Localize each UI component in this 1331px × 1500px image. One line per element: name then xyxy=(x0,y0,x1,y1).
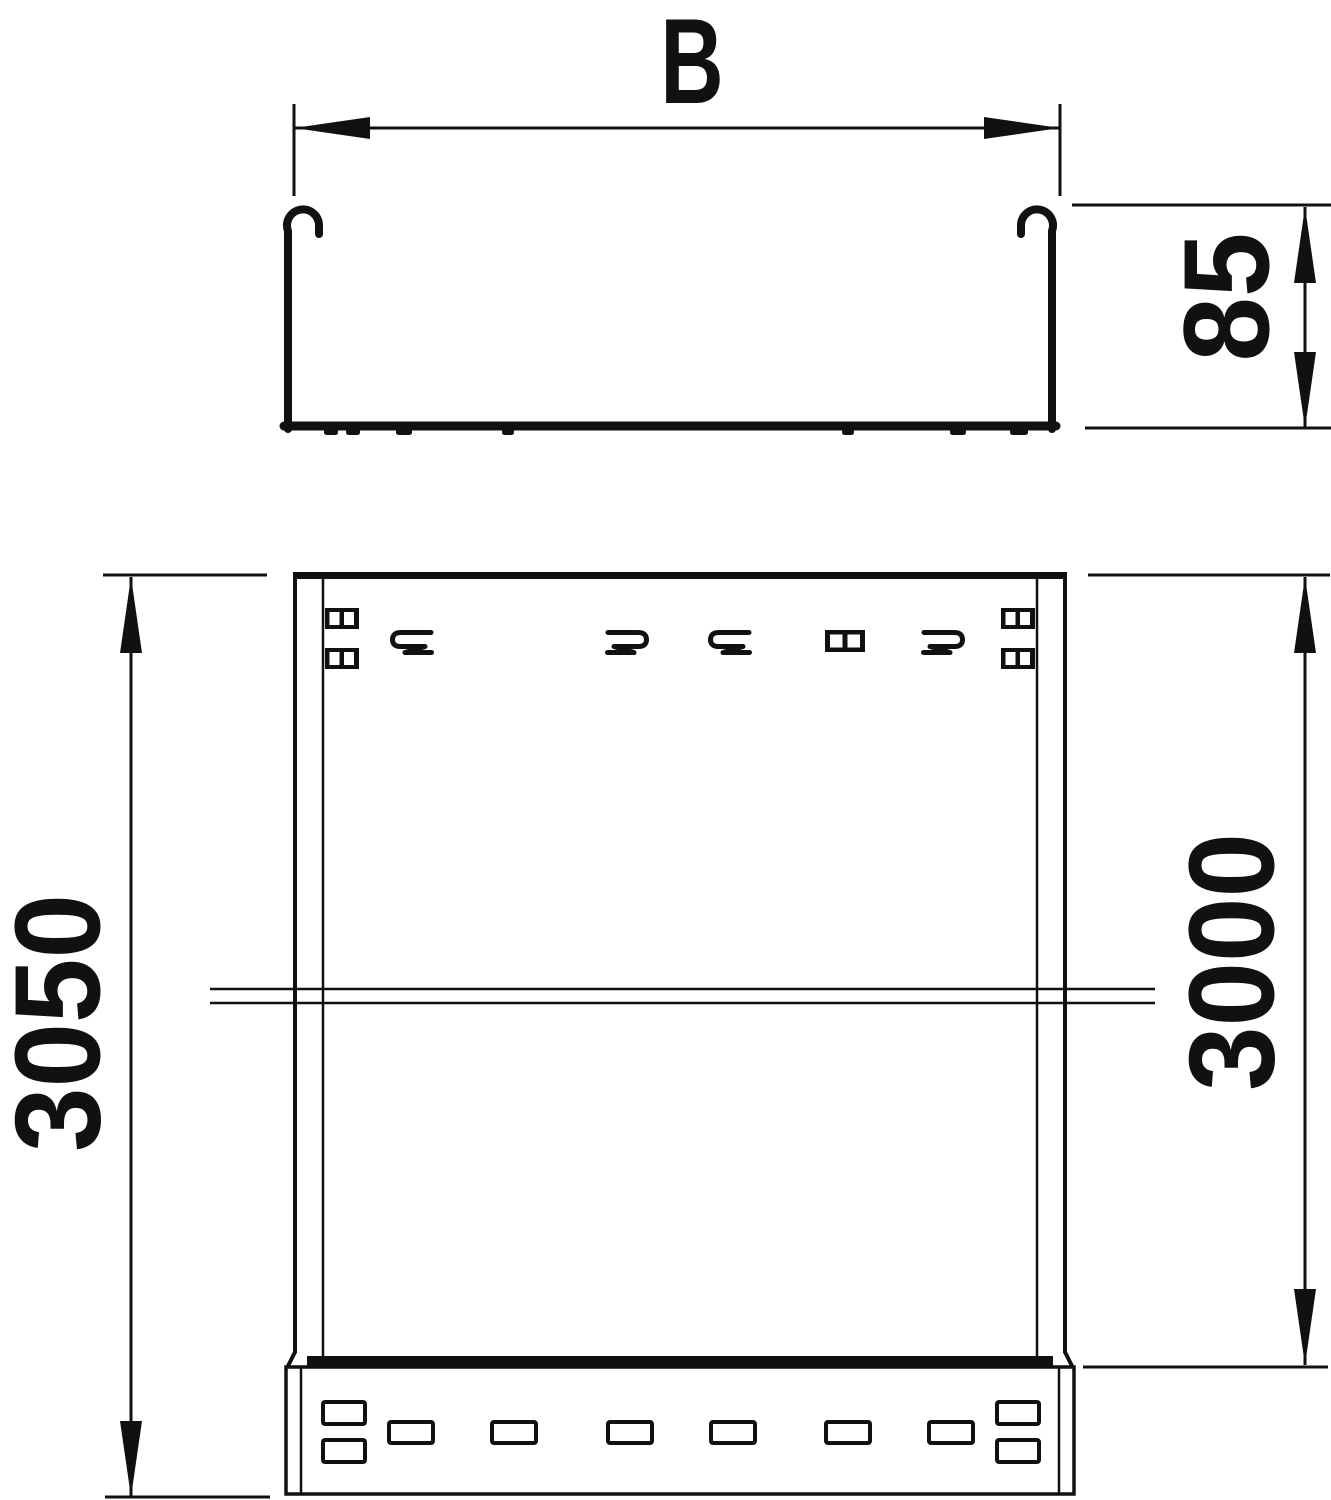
slot-perforation xyxy=(393,633,432,653)
arrowhead-down xyxy=(120,1421,142,1497)
slot-perforation xyxy=(608,633,647,653)
dimension-width-b: B xyxy=(294,0,1060,196)
rail-perforation xyxy=(325,608,359,629)
coupler-hole xyxy=(997,1402,1039,1424)
coupler-hole xyxy=(323,1440,365,1462)
left-coupler-chamfer xyxy=(288,1352,295,1366)
square-perforation xyxy=(825,630,865,652)
right-coupler-chamfer xyxy=(1065,1352,1072,1366)
cross-section-view xyxy=(284,209,1056,435)
tray-end-edge xyxy=(293,572,1067,579)
coupler-hole xyxy=(997,1440,1039,1462)
coupler-hole xyxy=(323,1402,365,1424)
rail-perforation xyxy=(1001,648,1035,669)
dimension-label-3000: 3000 xyxy=(1164,833,1300,1091)
left-side-wall-hook xyxy=(287,209,319,429)
arrowhead-up xyxy=(120,577,142,653)
coupler-top-bar xyxy=(307,1356,1053,1366)
coupler-hole xyxy=(711,1422,755,1443)
dimension-overall-length-3050: 3050 xyxy=(0,575,270,1497)
dimension-label-3050: 3050 xyxy=(0,894,126,1152)
coupler-hole xyxy=(929,1422,973,1443)
coupler-section xyxy=(286,1356,1074,1494)
coupler-hole xyxy=(492,1422,536,1443)
dimension-label-85: 85 xyxy=(1159,233,1295,362)
arrowhead-up xyxy=(1294,207,1316,283)
arrowhead-down xyxy=(1294,1289,1316,1365)
dimension-section-length-3000: 3000 xyxy=(1083,575,1330,1367)
plan-view xyxy=(210,572,1155,1494)
arrowhead-right xyxy=(984,117,1060,139)
rail-perforation xyxy=(1001,608,1035,629)
dimension-label-b: B xyxy=(660,0,723,129)
arrowhead-left xyxy=(294,117,370,139)
rail-perforation xyxy=(325,648,359,669)
slot-perforation xyxy=(711,633,750,653)
dimension-height-85: 85 xyxy=(1072,205,1331,428)
coupler-hole xyxy=(608,1422,652,1443)
technical-drawing: B 85 xyxy=(0,0,1331,1500)
coupler-hole xyxy=(826,1422,870,1443)
arrowhead-up xyxy=(1294,577,1316,653)
coupler-hole xyxy=(389,1422,433,1443)
arrowhead-down xyxy=(1294,352,1316,428)
right-side-wall-hook xyxy=(1021,209,1053,429)
slot-perforation xyxy=(924,633,963,653)
drawing-canvas: B 85 xyxy=(0,0,1331,1500)
